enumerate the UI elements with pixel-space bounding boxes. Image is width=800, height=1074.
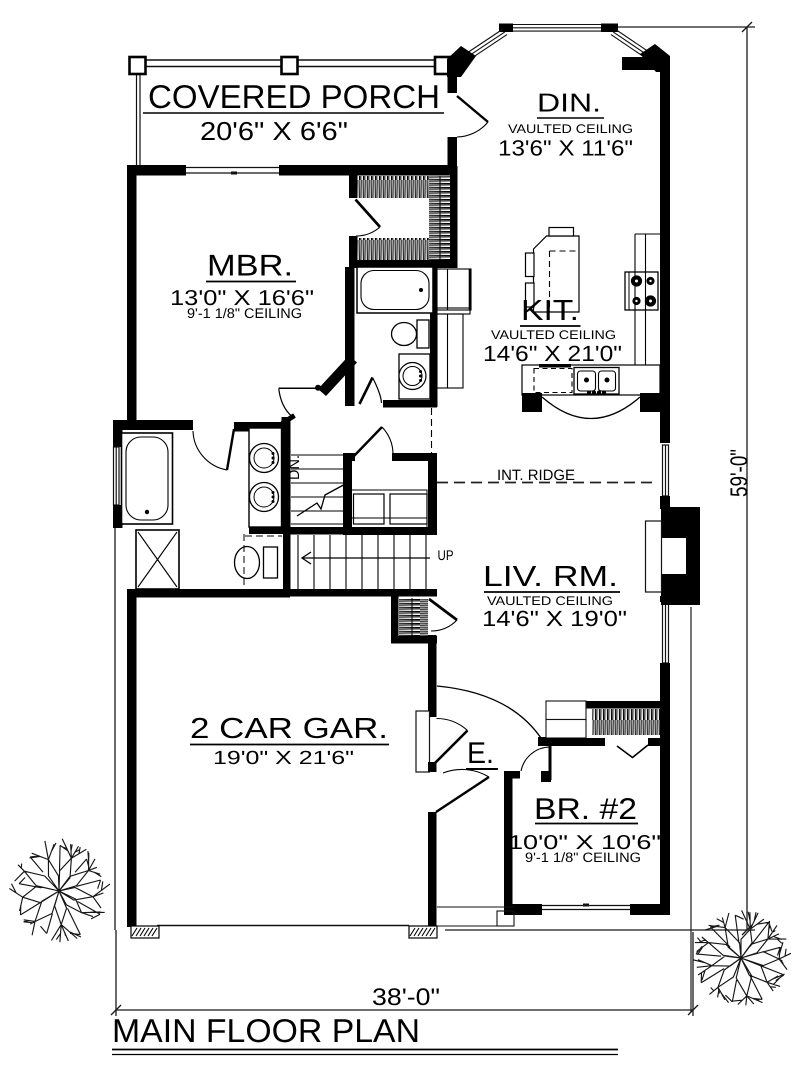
svg-text:UP: UP	[438, 547, 454, 563]
svg-text:38'-0": 38'-0"	[372, 984, 440, 1011]
svg-text:MBR.: MBR.	[207, 250, 293, 283]
svg-text:20'6" X 6'6": 20'6" X 6'6"	[200, 116, 348, 146]
svg-text:VAULTED CEILING: VAULTED CEILING	[491, 328, 616, 342]
svg-text:9'-1 1/8" CEILING: 9'-1 1/8" CEILING	[187, 305, 302, 321]
svg-text:14'6" X 21'0": 14'6" X 21'0"	[483, 341, 622, 366]
svg-text:14'6" X 19'0": 14'6" X 19'0"	[482, 606, 627, 631]
svg-text:MAIN FLOOR PLAN: MAIN FLOOR PLAN	[112, 1012, 420, 1049]
svg-text:COVERED PORCH: COVERED PORCH	[148, 78, 440, 115]
svg-text:KIT.: KIT.	[521, 295, 579, 327]
svg-text:INT. RIDGE: INT. RIDGE	[497, 467, 575, 484]
svg-text:LIV. RM.: LIV. RM.	[483, 561, 618, 593]
svg-text:2 CAR GAR.: 2 CAR GAR.	[190, 713, 388, 745]
svg-text:E.: E.	[467, 737, 494, 770]
svg-text:VAULTED CEILING: VAULTED CEILING	[508, 122, 633, 136]
svg-text:DIN.: DIN.	[537, 88, 601, 118]
svg-text:19'0" X 21'6": 19'0" X 21'6"	[213, 748, 354, 769]
svg-text:59'-0": 59'-0"	[726, 449, 753, 497]
svg-text:13'6" X 11'6": 13'6" X 11'6"	[498, 136, 633, 161]
svg-text:DN.: DN.	[286, 455, 303, 480]
svg-text:BR. #2: BR. #2	[534, 793, 637, 826]
svg-text:9'-1 1/8" CEILING: 9'-1 1/8" CEILING	[525, 850, 641, 865]
